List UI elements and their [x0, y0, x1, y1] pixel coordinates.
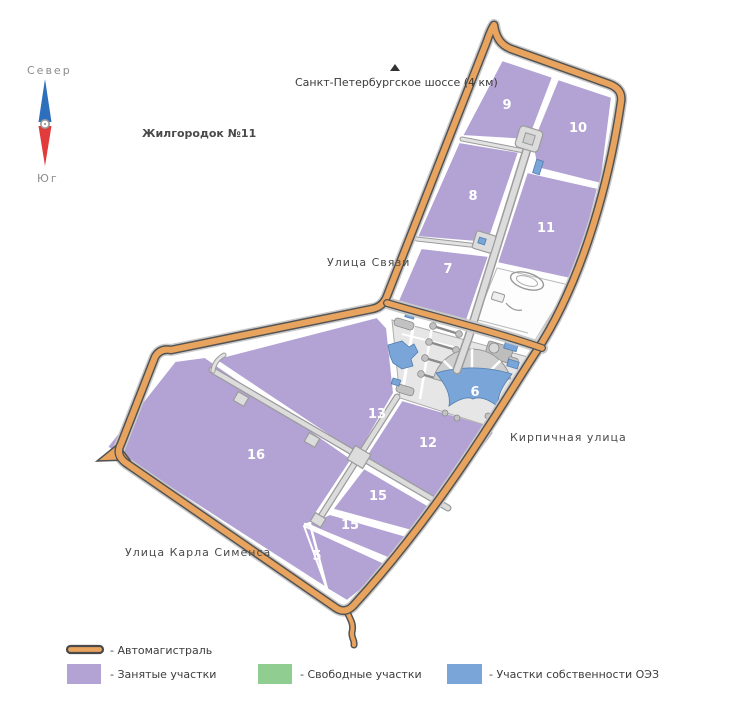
plot-15-lower-label: 15 — [341, 518, 359, 533]
compass-hub-dot — [44, 123, 46, 125]
street-simensa-label: Улица Карла Сименса — [125, 546, 271, 559]
legend-free-label: - Свободные участки — [300, 668, 422, 681]
legend-item-occupied: - Занятые участки — [67, 664, 216, 684]
plot-6-label: 6 — [470, 385, 479, 400]
street-svyazi-label: Улица Связи — [327, 256, 410, 269]
plot-13-label: 13 — [368, 407, 386, 422]
legend-item-oez: - Участки собственности ОЭЗ — [447, 664, 659, 684]
legend-road-swatch — [67, 646, 103, 653]
plot-9-label: 9 — [502, 98, 511, 113]
plot-5-label: 5 — [312, 549, 321, 564]
turnaround-inner — [523, 133, 535, 145]
street-kirpichnaya-label: Кирпичная улица — [510, 431, 627, 444]
legend-item-free: - Свободные участки — [258, 664, 422, 684]
plot-11-label: 11 — [537, 221, 555, 236]
compass-needle-south — [39, 126, 52, 166]
north-direction-icon — [390, 64, 400, 71]
sez-map-screen: Север Юг Санкт-Петербургское шоссе (4 км… — [0, 0, 731, 721]
legend: - Автомагистраль - Занятые участки - Сво… — [67, 644, 659, 684]
plot-8-label: 8 — [468, 189, 477, 204]
plot-10-label: 10 — [569, 121, 587, 136]
plot-16-label: 16 — [247, 448, 265, 463]
legend-item-highway: - Автомагистраль — [67, 644, 212, 657]
compass-south-label: Юг — [37, 172, 59, 185]
legend-occupied-label: - Занятые участки — [110, 668, 216, 681]
map-canvas: Север Юг Санкт-Петербургское шоссе (4 км… — [0, 0, 731, 721]
plot-7-label: 7 — [443, 262, 452, 277]
compass: Север Юг — [27, 64, 72, 185]
plot-12-label: 12 — [419, 436, 437, 451]
plot-15-upper-label: 15 — [369, 489, 387, 504]
compass-needle-north — [39, 79, 52, 122]
legend-oez-label: - Участки собственности ОЭЗ — [489, 668, 659, 681]
legend-free-swatch — [258, 664, 292, 684]
district-label: Жилгородок №11 — [142, 127, 256, 140]
legend-occupied-swatch — [67, 664, 101, 684]
legend-road-label: - Автомагистраль — [110, 644, 212, 657]
compass-north-label: Север — [27, 64, 72, 77]
legend-oez-swatch — [447, 664, 482, 684]
highway-label: Санкт-Петербургское шоссе (4 км) — [295, 76, 498, 89]
